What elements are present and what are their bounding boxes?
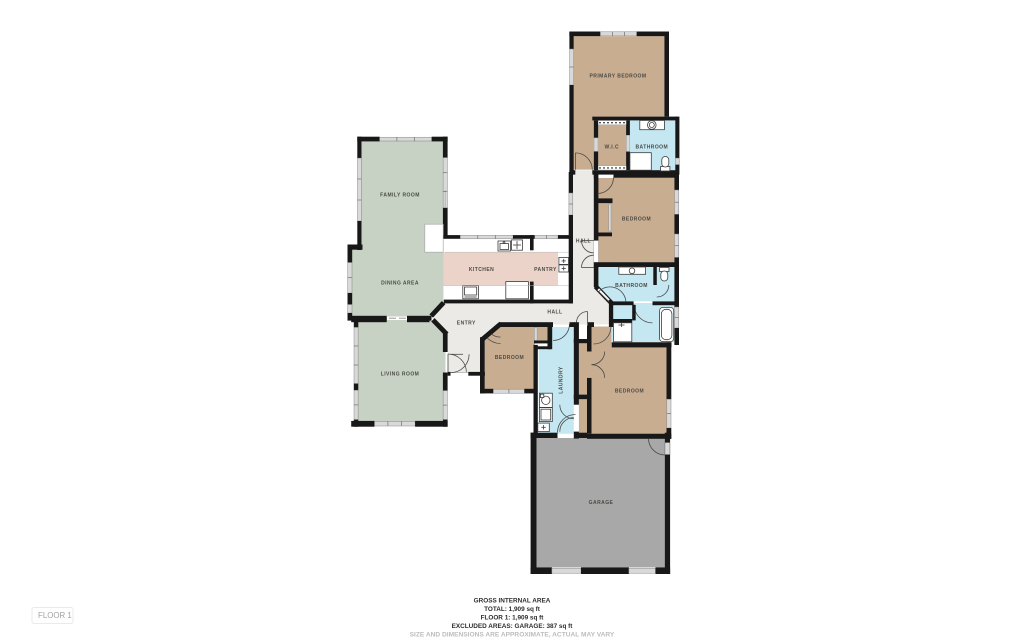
- svg-text:EXCLUDED AREAS: GARAGE: 387 sq: EXCLUDED AREAS: GARAGE: 387 sq ft: [452, 623, 574, 630]
- svg-text:BEDROOM: BEDROOM: [615, 388, 644, 394]
- svg-text:DINING AREA: DINING AREA: [381, 281, 419, 287]
- svg-text:PANTRY: PANTRY: [534, 267, 557, 273]
- svg-text:GROSS INTERNAL AREA: GROSS INTERNAL AREA: [474, 598, 551, 605]
- svg-text:LIVING ROOM: LIVING ROOM: [381, 372, 420, 378]
- svg-text:ENTRY: ENTRY: [457, 320, 476, 326]
- svg-text:HALL: HALL: [576, 239, 591, 245]
- svg-text:LAUNDRY: LAUNDRY: [559, 366, 565, 394]
- svg-text:FLOOR 1: 1,909 sq ft: FLOOR 1: 1,909 sq ft: [481, 615, 545, 622]
- svg-text:BEDROOM: BEDROOM: [495, 355, 524, 361]
- svg-text:BATHROOM: BATHROOM: [635, 144, 668, 150]
- svg-text:GARAGE: GARAGE: [589, 500, 614, 506]
- svg-text:SIZE AND DIMENSIONS ARE APPROX: SIZE AND DIMENSIONS ARE APPROXIMATE, ACT…: [410, 631, 615, 638]
- svg-text:PRIMARY BEDROOM: PRIMARY BEDROOM: [589, 74, 646, 80]
- svg-text:HALL: HALL: [547, 310, 562, 316]
- svg-text:BEDROOM: BEDROOM: [622, 217, 651, 223]
- svg-text:FAMILY ROOM: FAMILY ROOM: [380, 193, 420, 199]
- svg-text:KITCHEN: KITCHEN: [469, 267, 494, 273]
- svg-text:W.I.C: W.I.C: [605, 144, 619, 150]
- svg-text:TOTAL: 1,909 sq ft: TOTAL: 1,909 sq ft: [484, 606, 541, 613]
- svg-text:BATHROOM: BATHROOM: [615, 283, 648, 289]
- svg-text:FLOOR 1: FLOOR 1: [38, 611, 72, 620]
